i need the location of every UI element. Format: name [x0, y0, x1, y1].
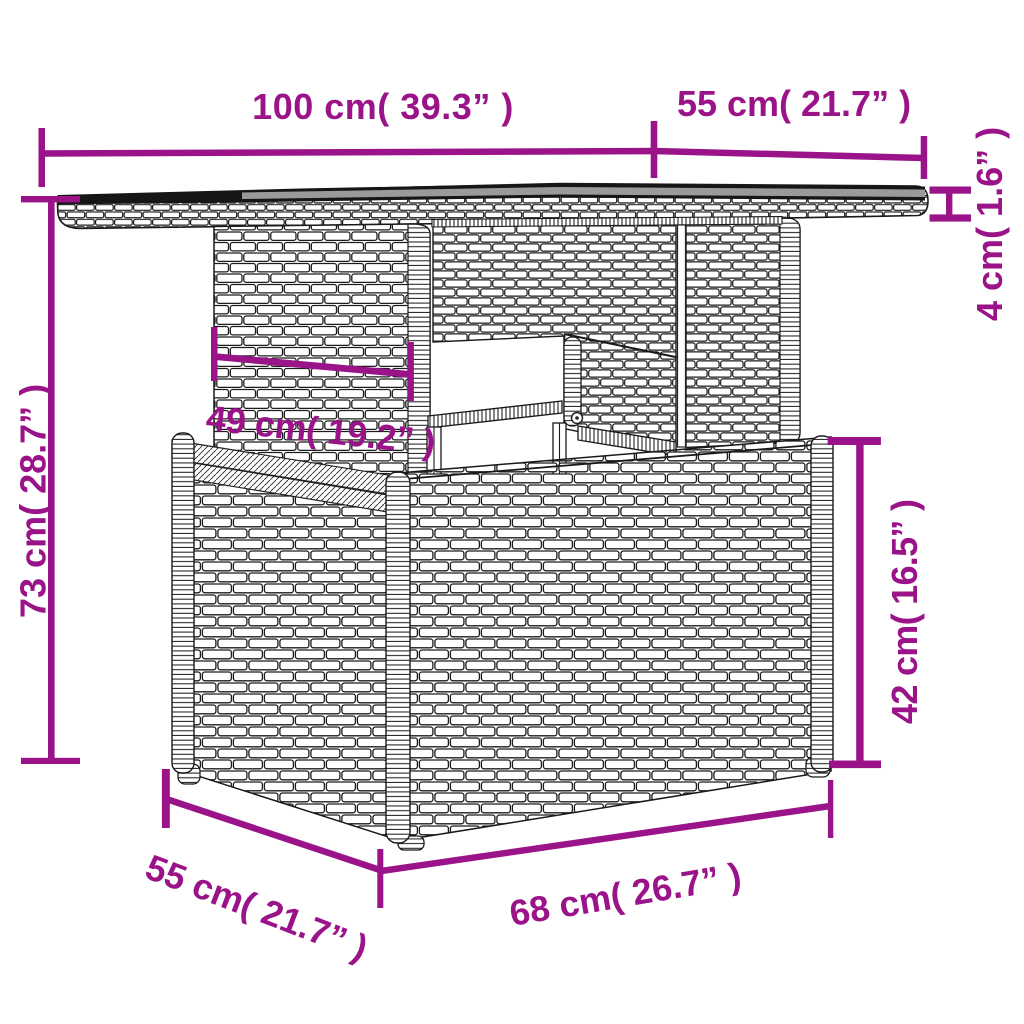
svg-text:73 cm( 28.7” ): 73 cm( 28.7” ) — [13, 384, 54, 618]
svg-text:4 cm( 1.6” ): 4 cm( 1.6” ) — [969, 127, 1010, 321]
svg-text:55 cm( 21.7” ): 55 cm( 21.7” ) — [677, 83, 911, 124]
svg-text:100 cm( 39.3” ): 100 cm( 39.3” ) — [252, 86, 514, 127]
svg-text:42 cm( 16.5” ): 42 cm( 16.5” ) — [884, 500, 925, 724]
